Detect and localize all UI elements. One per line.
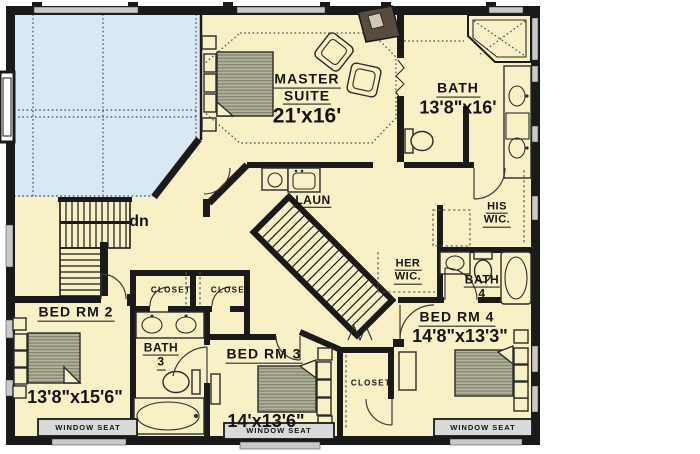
window-seat-label: WINDOW SEAT [450,424,515,432]
bath4-label: BATH 4 [464,274,500,303]
room-dimension: 13'8"x16' [419,97,496,117]
bedroom2-label: BED RM 2 [38,305,115,322]
nightstand [514,398,528,411]
laundry-label: LAUN [294,194,331,208]
room-dimension: 21'x16' [273,105,341,129]
closet-label: CLOSET [211,287,251,296]
his-wic-label: HIS WIC. [483,201,511,228]
double-vanity [504,66,531,178]
room-name: HIS [486,201,508,214]
room-name: SUITE [283,88,331,105]
room-name: BATH [436,81,480,98]
washer-dryer [262,168,320,192]
closet-label: CLOSET [351,380,391,389]
dresser [211,374,220,404]
nightstand [202,36,216,49]
bedroom2-dimension: 13'8"x15'6" [27,387,123,407]
stair-direction-label: dn [129,213,149,231]
room-name: BATH [464,274,500,288]
dresser [399,352,416,390]
nightstand [13,386,26,398]
window-seat-label: WINDOW SEAT [55,424,120,432]
room-name: 4 [477,288,486,302]
window-seat-label: WINDOW SEAT [246,427,311,435]
bath3-label: BATH 3 [143,342,179,371]
bedroom4-dimension: 14'8"x13'3" [412,326,508,346]
fireplace [358,6,400,42]
nightstand [514,330,528,343]
room-name: 3 [156,356,165,370]
room-name: WIC. [483,214,511,227]
nightstand [318,348,332,360]
bedroom3-label: BED RM 3 [226,347,303,364]
floor-plan: MASTER SUITE 21'x16' BATH 13'8"x16' LAUN… [0,0,700,454]
room-name: BED RM 2 [38,305,115,322]
closet-label: CLOSET [151,287,191,296]
room-name: HER [395,258,422,271]
room-name: BED RM 3 [226,347,303,364]
room-name: MASTER [273,72,340,89]
her-wic-label: HER WIC. [394,258,422,285]
bedroom4-label: BED RM 4 [419,310,496,327]
room-name: WIC. [394,271,422,284]
room-name: BED RM 4 [419,310,496,327]
room-name: BATH [143,342,179,356]
nightstand [13,318,26,330]
room-name: LAUN [294,194,331,208]
master-bath-label: BATH 13'8"x16' [419,81,496,118]
master-suite-label: MASTER SUITE 21'x16' [273,72,341,129]
